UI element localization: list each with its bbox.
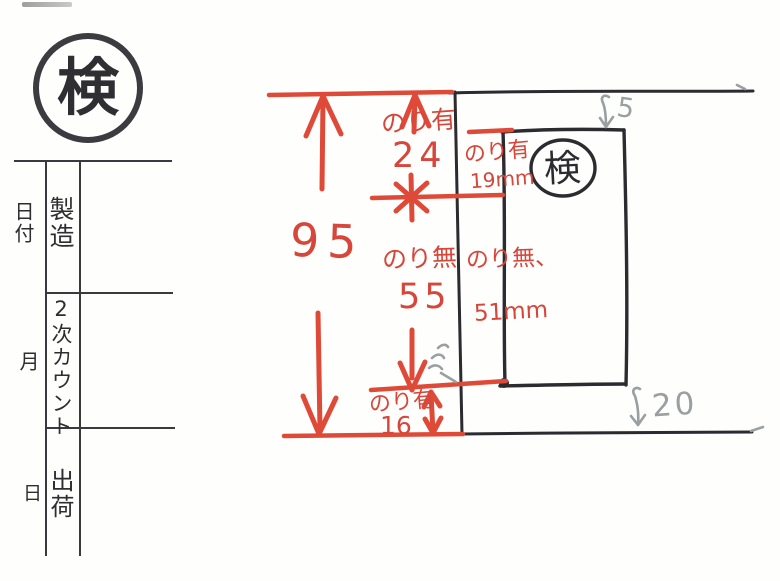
dim-glue-top-label: のり有 bbox=[380, 106, 457, 136]
dim-no-glue-left-label: のり無 bbox=[382, 245, 458, 273]
dim-glue-bottom-value: 16 bbox=[380, 413, 412, 438]
arrow-95-up-shaft bbox=[322, 97, 323, 189]
dim-glue-right-value: 19mm bbox=[469, 167, 535, 191]
red-bottom-line bbox=[284, 434, 463, 436]
pencil-tick-top-right bbox=[737, 85, 745, 89]
dim-no-glue-left-value: 55 bbox=[398, 280, 451, 315]
arrow-95-down-shaft bbox=[318, 313, 320, 430]
dim-total-height-value: 95 bbox=[289, 217, 365, 266]
diagram-sketch bbox=[0, 0, 780, 581]
pencil-tick-bottom-right bbox=[751, 427, 763, 431]
dim-glue-right-label: のり有 bbox=[463, 139, 531, 167]
dim-glue-top-value: 24 bbox=[392, 139, 447, 174]
pencil-arrow-bottom-icon bbox=[631, 388, 645, 425]
red-middle-line bbox=[372, 195, 503, 198]
dim-no-glue-right-value: 51mm bbox=[473, 299, 548, 326]
red-top-line bbox=[269, 92, 452, 95]
diagram-stamp-label: 検 bbox=[543, 149, 582, 188]
pencil-gap-bottom-value: 20 bbox=[651, 388, 699, 422]
red-lower-line bbox=[371, 381, 506, 390]
pencil-arrow-top-icon bbox=[600, 96, 613, 127]
scanned-inspection-sheet: 検 日付 製造 月 2次カウント 日 出荷 bbox=[0, 0, 780, 581]
red-right-ref-line bbox=[469, 130, 512, 132]
dim-no-glue-right-label: のり無、 bbox=[466, 246, 559, 272]
arrow-55-down bbox=[400, 330, 425, 390]
pencil-scribble bbox=[429, 345, 456, 382]
